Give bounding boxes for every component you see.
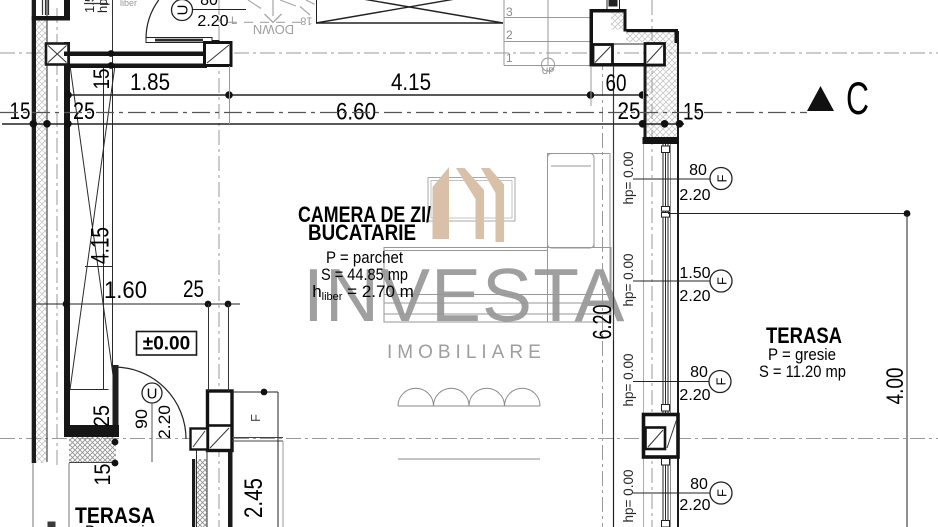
svg-text:hp=1.00: hp=1.00	[95, 0, 110, 13]
svg-text:15: 15	[89, 69, 114, 90]
svg-text:90: 90	[132, 409, 151, 429]
svg-text:18: 18	[300, 15, 312, 27]
svg-text:F: F	[714, 377, 729, 385]
svg-text:F: F	[715, 277, 730, 285]
svg-text:80: 80	[689, 162, 707, 179]
svg-text:L: L	[231, 15, 237, 27]
svg-text:1.50: 1.50	[679, 265, 710, 282]
svg-text:hp= 0.00: hp= 0.00	[621, 354, 636, 407]
svg-text:80: 80	[690, 476, 708, 493]
svg-text:3: 3	[506, 5, 513, 19]
svg-text:liber: liber	[120, 0, 137, 8]
svg-text:25: 25	[89, 405, 114, 427]
svg-text:1: 1	[506, 51, 513, 65]
svg-text:U: U	[175, 5, 192, 16]
svg-text:F: F	[248, 414, 263, 422]
svg-text:F: F	[715, 489, 730, 497]
svg-text:80: 80	[200, 0, 218, 9]
svg-text:2.45: 2.45	[240, 478, 268, 518]
svg-text:4.15: 4.15	[391, 69, 431, 96]
svg-text:P = gresie: P = gresie	[85, 522, 153, 527]
svg-text:2.20: 2.20	[679, 288, 710, 305]
svg-text:2.20: 2.20	[197, 13, 228, 30]
svg-text:2.20: 2.20	[679, 387, 710, 404]
svg-text:IMOBILIARE: IMOBILIARE	[387, 342, 546, 363]
svg-text:BUCATARIE: BUCATARIE	[308, 220, 416, 245]
svg-text:1.50: 1.50	[82, 0, 97, 13]
svg-text:2.20: 2.20	[155, 405, 174, 439]
svg-text:2.20: 2.20	[679, 497, 710, 514]
svg-text:25: 25	[618, 98, 641, 125]
svg-text:2: 2	[506, 28, 513, 42]
svg-text:2.20: 2.20	[679, 187, 710, 204]
svg-text:F: F	[715, 174, 730, 182]
svg-text:15: 15	[90, 464, 115, 486]
svg-text:15: 15	[10, 98, 31, 125]
svg-text:1.85: 1.85	[130, 69, 170, 96]
svg-text:C: C	[846, 73, 869, 124]
svg-text:25: 25	[183, 276, 204, 303]
svg-text:60: 60	[606, 70, 627, 97]
svg-text:4.00: 4.00	[882, 368, 909, 405]
svg-text:hp= 0.00: hp= 0.00	[621, 152, 636, 205]
svg-text:±0.00: ±0.00	[143, 334, 190, 355]
svg-text:4.15: 4.15	[87, 227, 115, 264]
svg-text:hp= 0.00: hp= 0.00	[621, 254, 636, 307]
svg-text:UP: UP	[542, 66, 555, 76]
svg-text:U: U	[147, 386, 158, 403]
svg-text:80: 80	[690, 364, 708, 381]
svg-text:DOWN: DOWN	[253, 22, 294, 37]
svg-text:1.60: 1.60	[104, 277, 147, 304]
svg-text:6.20: 6.20	[587, 305, 617, 340]
svg-text:25: 25	[73, 98, 95, 125]
svg-text:hp= 0.00: hp= 0.00	[621, 470, 636, 523]
svg-text:S = 11.20 mp: S = 11.20 mp	[759, 362, 846, 381]
